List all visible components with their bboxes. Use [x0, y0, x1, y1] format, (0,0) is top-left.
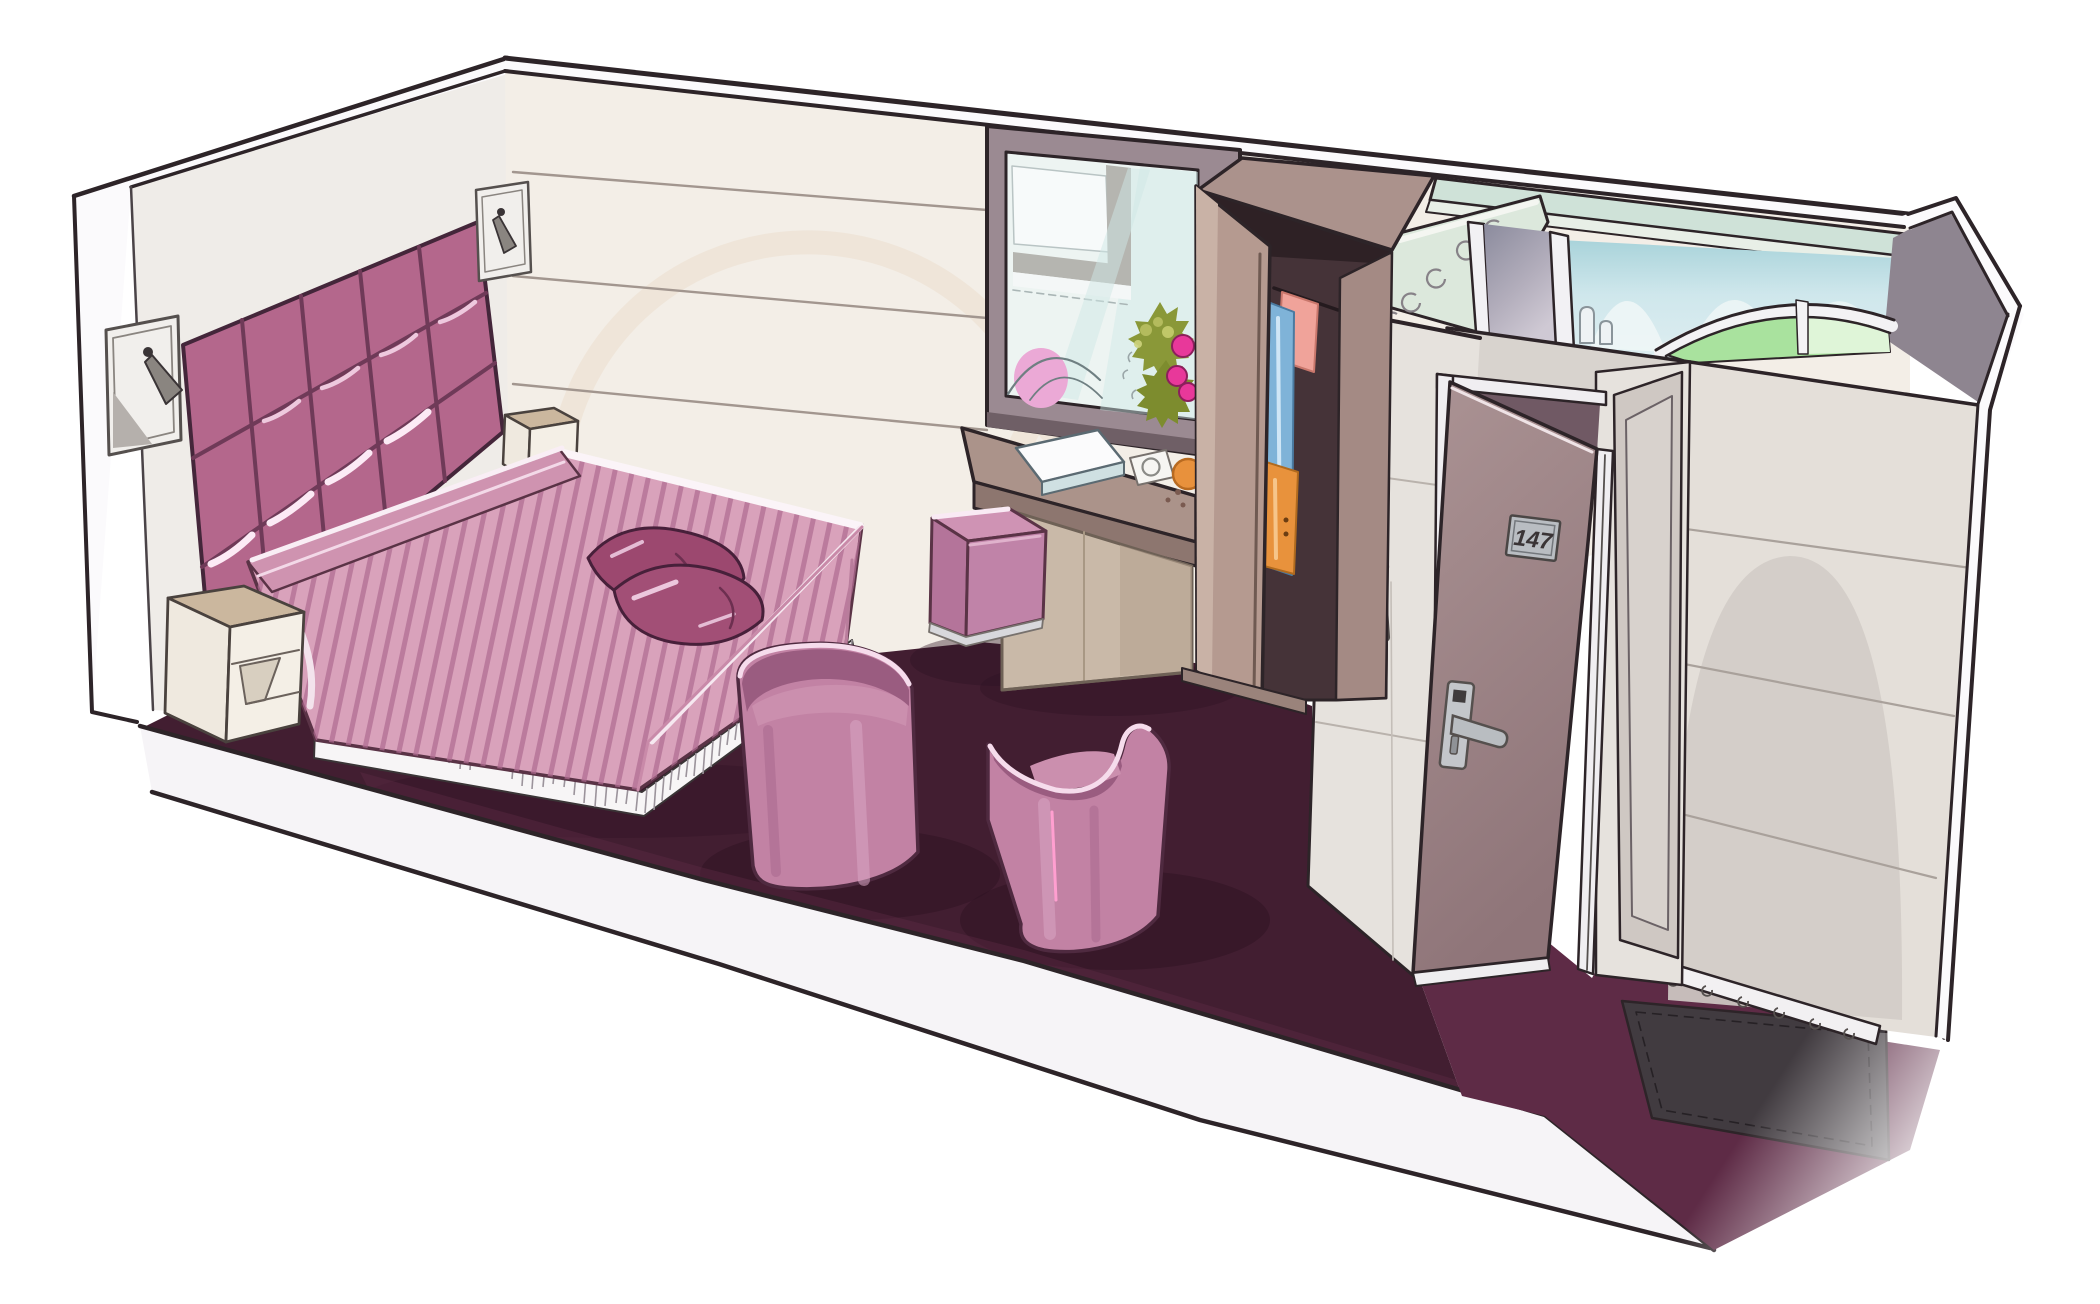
svg-text:147: 147: [1512, 524, 1554, 555]
